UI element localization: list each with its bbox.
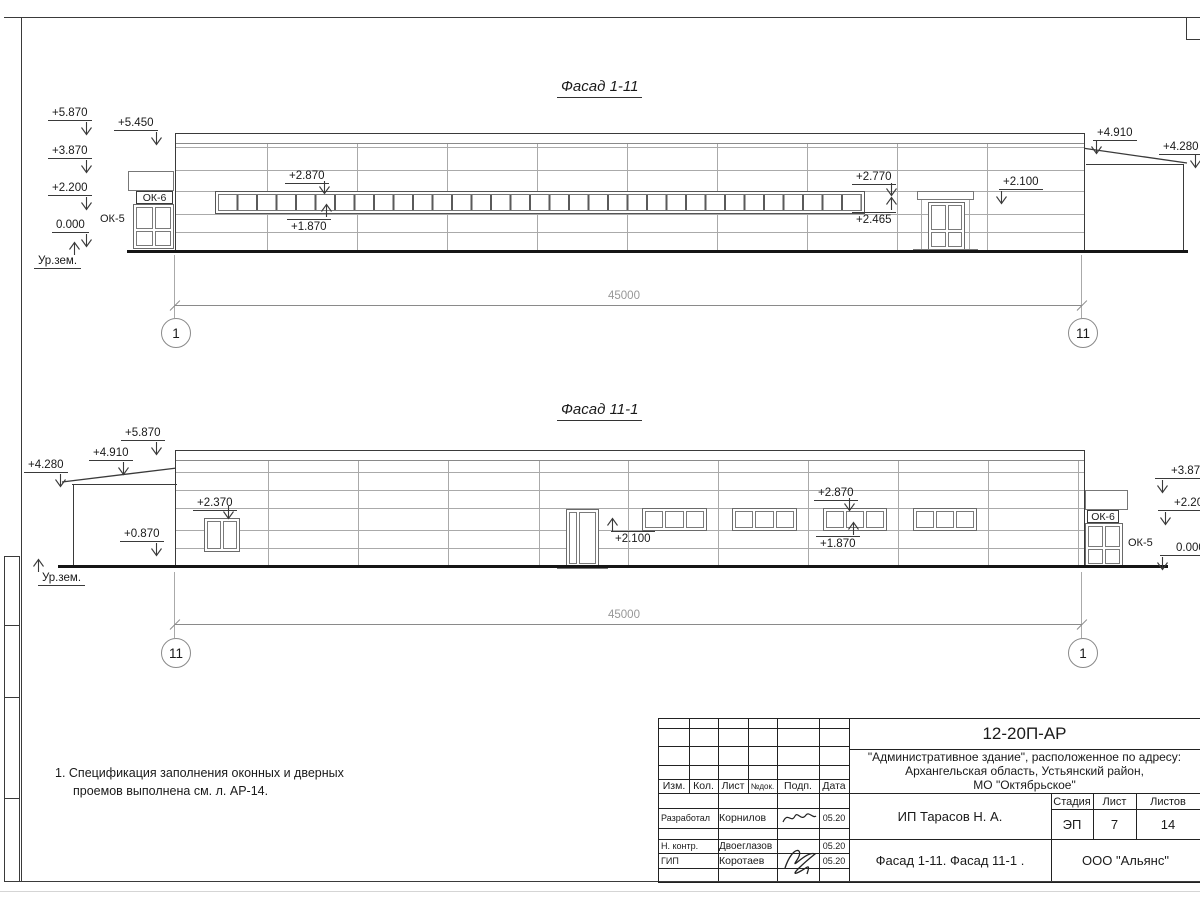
- level-arrow-icon: [32, 558, 45, 573]
- dimension-label: 45000: [608, 290, 640, 302]
- tb-client: ИП Тарасов Н. А.: [849, 793, 1051, 839]
- tb-sheet-value: 7: [1093, 809, 1136, 839]
- parapet-line: [176, 460, 1084, 461]
- elevation-mark: +5.450: [114, 117, 158, 131]
- tb-sheet-title: Фасад 1-11. Фасад 11-1 .: [849, 839, 1051, 881]
- ribbon-window-band: [215, 191, 865, 214]
- tb-project-line3: МО "Октябрьское": [849, 778, 1200, 792]
- sheet-edge-line: [0, 891, 1200, 892]
- elevation-mark: +0.870: [120, 528, 164, 542]
- tb-role: ГИП: [661, 853, 718, 868]
- tb-header-izm: Изм.: [659, 779, 689, 793]
- note-line-2: проемов выполнена см. л. АР-14.: [73, 784, 268, 798]
- panel-joint: [539, 461, 540, 566]
- siding-line: [176, 490, 1084, 491]
- frame-left-line: [21, 17, 22, 882]
- level-arrow-icon: [80, 121, 93, 136]
- tb-date: 05.20: [819, 839, 849, 853]
- ribbon-window-panes: [218, 194, 862, 211]
- entrance-door-ok5: [133, 204, 174, 249]
- siding-line: [176, 147, 1084, 148]
- parapet-line: [176, 143, 1084, 144]
- panel-joint: [268, 461, 269, 566]
- axis-extension-line: [1081, 572, 1082, 638]
- annex-eave-line: [1086, 164, 1184, 165]
- level-arrow-icon: [150, 131, 163, 146]
- dimension-label: 45000: [608, 609, 640, 621]
- facade-1-11-title: Фасад 1-11: [557, 78, 642, 98]
- door-post: [969, 200, 970, 250]
- entrance-top-window: [1085, 490, 1128, 510]
- door-canopy: [917, 191, 974, 200]
- tb-doc-code: 12-20П-АР: [849, 719, 1200, 749]
- stamp-strip-divider: [4, 798, 20, 799]
- facade-11-1-title: Фасад 11-1: [557, 401, 642, 421]
- tb-sheets-value: 14: [1136, 809, 1200, 839]
- middle-door: [566, 509, 599, 567]
- axis-circle-1: 1: [161, 318, 191, 348]
- ground-line: [58, 565, 1168, 568]
- axis-extension-line: [1081, 255, 1082, 318]
- door-post: [921, 200, 922, 250]
- elevation-mark: +4.280: [24, 459, 68, 473]
- ok6-label-box: ОК-6: [136, 191, 173, 204]
- stamp-strip-line: [19, 556, 20, 882]
- drawing-sheet: Фасад 1-11 ОК-6 ОК-5 Ур.зем. +5.: [0, 0, 1200, 900]
- ground-level-label: Ур.зем.: [34, 255, 81, 269]
- tb-name: Двоеглазов: [719, 839, 777, 853]
- level-arrow-icon: [995, 190, 1008, 205]
- tb-stage-value: ЭП: [1051, 809, 1093, 839]
- dimension-line: [175, 624, 1082, 625]
- tb-name: Коротаев: [719, 853, 777, 868]
- tb-header-ndok: №док.: [748, 779, 777, 793]
- stamp-strip-divider: [4, 625, 20, 626]
- elevation-mark: +1.870: [287, 219, 331, 233]
- facade-door: [928, 202, 965, 250]
- elevation-mark: +2.100: [611, 531, 655, 545]
- panel-joint: [987, 144, 988, 251]
- tb-date: 05.20: [819, 808, 849, 828]
- level-arrow-icon: [1159, 511, 1172, 526]
- level-arrow-icon: [843, 497, 856, 512]
- tb-sheets-header: Листов: [1136, 794, 1200, 809]
- tb-header-data: Дата: [819, 779, 849, 793]
- elevation-mark: +4.280: [1159, 141, 1200, 155]
- entrance-door-ok5: [1085, 523, 1123, 567]
- frame-corner-box: [1186, 17, 1200, 40]
- level-arrow-icon: [606, 517, 619, 532]
- window-3pane: [642, 508, 707, 531]
- level-arrow-icon: [222, 505, 235, 520]
- stamp-strip-divider: [4, 556, 20, 557]
- axis-circle-1: 1: [1068, 638, 1098, 668]
- tb-role: Н. контр.: [661, 839, 718, 853]
- entrance-top-window: [128, 171, 174, 191]
- level-arrow-icon: [1090, 140, 1103, 155]
- elevation-mark: +2.465: [852, 212, 896, 226]
- panel-joint: [808, 461, 809, 566]
- elevation-mark: 0.000: [52, 219, 89, 233]
- level-arrow-icon: [117, 461, 130, 476]
- level-arrow-icon: [318, 180, 331, 195]
- elevation-mark: +2.200: [1158, 497, 1200, 511]
- elevation-mark: +3.870: [48, 145, 92, 159]
- tb-header-podp: Подп.: [777, 779, 819, 793]
- axis-circle-11: 11: [161, 638, 191, 668]
- tb-name: Корнилов: [719, 808, 776, 828]
- stamp-strip-line: [4, 556, 5, 882]
- tb-project-line2: Архангельская область, Устьянский район,: [849, 764, 1200, 778]
- level-arrow-icon: [54, 473, 67, 488]
- elevation-mark: 0.000: [1160, 542, 1200, 556]
- window-3pane: [913, 508, 977, 531]
- level-arrow-icon: [80, 233, 93, 248]
- elevation-mark: +5.870: [48, 107, 92, 121]
- tb-stage-header: Стадия: [1051, 794, 1093, 809]
- panel-joint: [1078, 461, 1079, 566]
- elevation-mark: +4.910: [1093, 127, 1137, 141]
- level-arrow-icon: [150, 441, 163, 456]
- tb-project-line1: "Административное здание", расположенное…: [849, 750, 1200, 764]
- axis-circle-11: 11: [1068, 318, 1098, 348]
- siding-line: [176, 548, 1084, 549]
- level-arrow-icon: [150, 542, 163, 557]
- ground-level-label: Ур.зем.: [38, 572, 85, 586]
- signature: [779, 808, 819, 828]
- panel-joint: [448, 461, 449, 566]
- annex-wall: [1183, 164, 1184, 250]
- tb-header-kol: Кол.: [689, 779, 718, 793]
- annex-wall: [73, 484, 74, 566]
- level-arrow-icon: [1156, 556, 1169, 571]
- panel-joint: [988, 461, 989, 566]
- ok5-label: ОК-5: [1128, 537, 1153, 549]
- level-arrow-icon: [80, 159, 93, 174]
- level-arrow-icon: [847, 521, 860, 536]
- elevation-mark: +2.200: [48, 182, 92, 196]
- ground-line: [127, 250, 1188, 253]
- panel-joint: [628, 461, 629, 566]
- panel-joint: [898, 461, 899, 566]
- signature: [777, 837, 821, 883]
- annex-eave-line: [72, 484, 177, 485]
- level-arrow-icon: [1189, 154, 1200, 169]
- elevation-mark: +3.870: [1155, 465, 1200, 479]
- axis-extension-line: [174, 572, 175, 638]
- tb-date: 05.20: [819, 853, 849, 868]
- tb-sheet-header: Лист: [1093, 794, 1136, 809]
- stamp-strip-divider: [4, 697, 20, 698]
- elevation-mark: +4.910: [89, 447, 133, 461]
- level-arrow-icon: [885, 196, 898, 211]
- elevation-mark: +1.870: [816, 536, 860, 550]
- level-arrow-icon: [320, 203, 333, 218]
- siding-line: [176, 472, 1084, 473]
- frame-top-line: [4, 17, 1200, 18]
- ok5-label: ОК-5: [100, 213, 125, 225]
- tb-org: ООО "Альянс": [1051, 839, 1200, 881]
- ok6-label-box: ОК-6: [1087, 510, 1119, 523]
- window-2pane: [204, 518, 240, 552]
- axis-extension-line: [174, 255, 175, 318]
- panel-joint: [358, 461, 359, 566]
- signature-icon: [777, 838, 821, 882]
- title-block: Изм. Кол. Лист №док. Подп. Дата Разработ…: [658, 718, 1200, 883]
- elevation-mark: +2.100: [999, 176, 1043, 190]
- elevation-mark: +5.870: [121, 427, 165, 441]
- level-arrow-icon: [1156, 479, 1169, 494]
- tb-header-list: Лист: [718, 779, 748, 793]
- note-line-1: 1. Спецификация заполнения оконных и две…: [55, 766, 344, 780]
- level-arrow-icon: [885, 182, 898, 197]
- dimension-line: [175, 305, 1082, 306]
- window-3pane: [732, 508, 797, 531]
- signature-icon: [780, 809, 818, 827]
- panel-joint: [718, 461, 719, 566]
- level-arrow-icon: [80, 196, 93, 211]
